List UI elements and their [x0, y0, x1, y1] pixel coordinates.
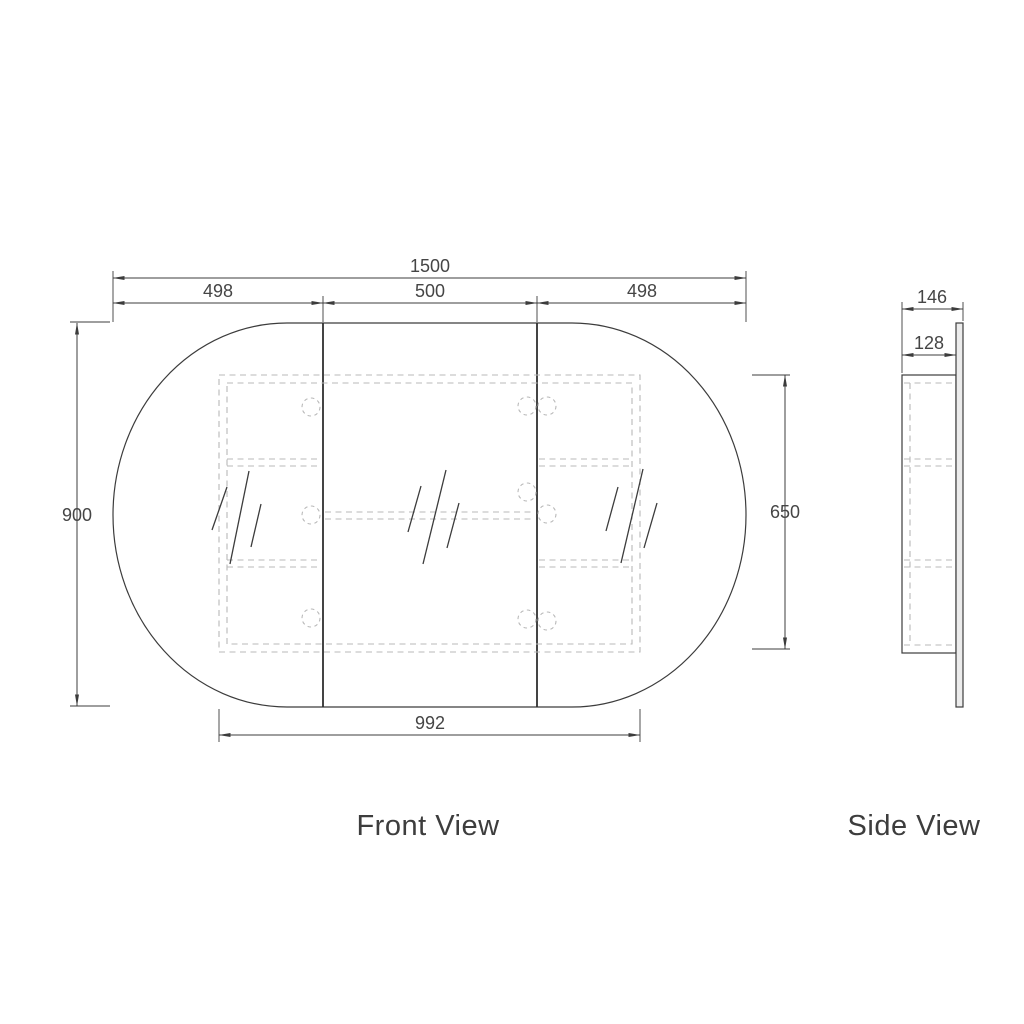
dim-carcass-width: 992 [219, 709, 640, 742]
shelves-right [539, 459, 632, 567]
dim-text-carcass-height: 650 [770, 502, 800, 522]
dim-overall-height: 900 [62, 322, 110, 706]
dim-text-left-door: 498 [203, 281, 233, 301]
side-hidden-lines [904, 383, 954, 645]
dim-text-overall-height: 900 [62, 505, 92, 525]
dim-overall-depth: 146 [902, 287, 963, 373]
shelves-left [227, 459, 321, 567]
side-view: 146 128 Side View [848, 287, 981, 842]
technical-drawing: 1500 498 500 498 900 650 [0, 0, 1024, 1024]
shelves-center [325, 512, 533, 519]
dim-text-carcass-width: 992 [415, 713, 445, 733]
dim-text-center-door: 500 [415, 281, 445, 301]
front-view: 1500 498 500 498 900 650 [62, 256, 800, 842]
cabinet-outline [113, 323, 746, 707]
dim-carcass-height: 650 [752, 375, 800, 649]
front-view-label: Front View [356, 810, 500, 842]
mirror-glint-center-door [408, 470, 459, 564]
hinge-circles [302, 397, 556, 630]
dim-carcass-depth: 128 [902, 333, 956, 373]
dim-text-right-door: 498 [627, 281, 657, 301]
dim-text-carcass-depth: 128 [914, 333, 944, 353]
side-mirror-panel [956, 323, 963, 707]
carcass-hidden-outline-outer [219, 375, 640, 652]
side-view-label: Side View [848, 810, 981, 842]
carcass-hidden-outline-inner [227, 383, 632, 644]
dim-text-overall-width: 1500 [410, 256, 450, 276]
dim-text-overall-depth: 146 [917, 287, 947, 307]
dim-door-widths: 498 500 498 [113, 281, 746, 322]
